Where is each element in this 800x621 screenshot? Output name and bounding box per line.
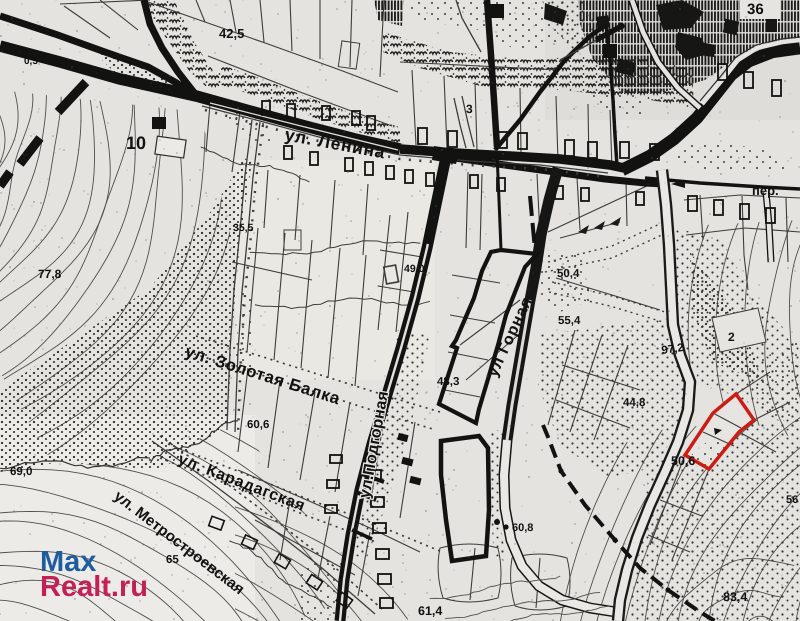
svg-text:Realt.ru: Realt.ru [40,571,148,603]
svg-text:3: 3 [466,102,473,116]
svg-text:50,6: 50,6 [671,454,695,468]
svg-text:42,5: 42,5 [219,26,244,41]
svg-text:61,4: 61,4 [418,604,442,618]
svg-text:2: 2 [728,330,735,344]
svg-text:36: 36 [747,1,764,18]
svg-text:44,8: 44,8 [623,397,646,409]
svg-text:65: 65 [166,554,179,566]
svg-text:77,8: 77,8 [38,267,62,281]
svg-text:69,0: 69,0 [10,466,32,478]
svg-text:55,4: 55,4 [558,315,581,327]
svg-text:35,5: 35,5 [233,222,254,234]
svg-text:83,4: 83,4 [723,590,747,604]
svg-text:50,4: 50,4 [557,268,580,280]
svg-text:0,5: 0,5 [24,56,38,67]
svg-text:48,3: 48,3 [437,376,459,388]
svg-text:10: 10 [126,133,146,153]
svg-text:пер.: пер. [752,183,779,198]
svg-text:49,0: 49,0 [404,263,425,275]
svg-text:60,6: 60,6 [247,419,269,431]
svg-text:60,8: 60,8 [512,522,533,534]
svg-text:56: 56 [786,494,798,506]
